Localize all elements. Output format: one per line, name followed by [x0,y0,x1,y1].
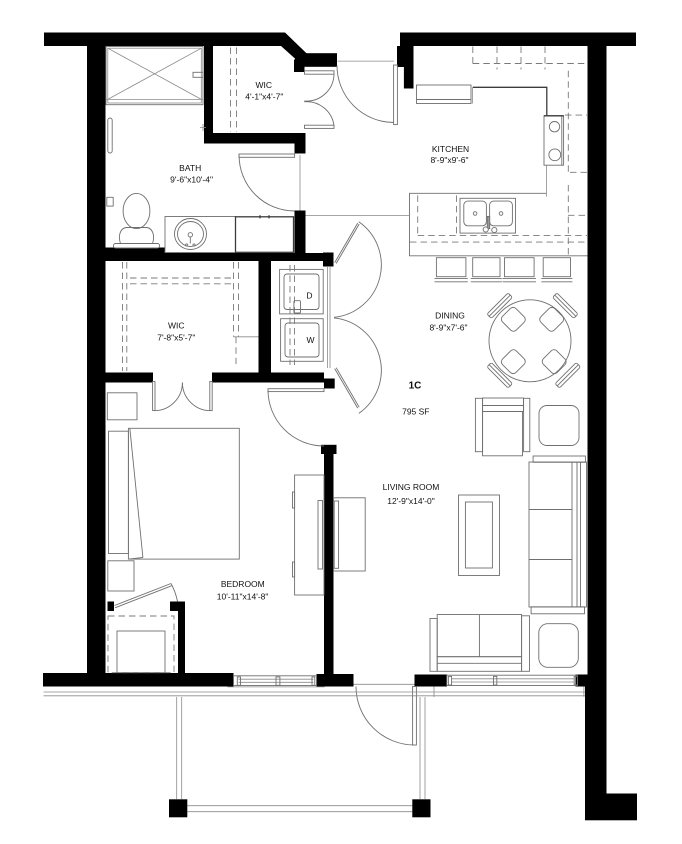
svg-text:BEDROOM: BEDROOM [221,579,265,589]
svg-text:1C: 1C [409,381,422,392]
svg-text:8'-9"x7'-6": 8'-9"x7'-6" [429,322,467,332]
svg-text:WIC: WIC [168,321,185,331]
svg-text:LIVING ROOM: LIVING ROOM [383,482,440,492]
svg-text:D: D [306,291,312,301]
svg-text:12'-9"x14'-0": 12'-9"x14'-0" [387,496,435,506]
svg-text:KITCHEN: KITCHEN [432,144,469,154]
svg-text:9'-6"x10'-4": 9'-6"x10'-4" [170,174,213,184]
svg-text:DINING: DINING [435,310,465,320]
svg-text:WIC: WIC [256,80,273,90]
svg-text:10'-11"x14'-8": 10'-11"x14'-8" [217,591,269,601]
svg-text:7'-8"x5'-7": 7'-8"x5'-7" [157,333,195,343]
svg-text:W: W [306,335,314,345]
svg-text:4'-1"x4'-7": 4'-1"x4'-7" [245,91,283,101]
svg-text:795 SF: 795 SF [402,406,429,416]
svg-text:BATH: BATH [179,163,201,173]
svg-text:8'-9"x9'-6": 8'-9"x9'-6" [430,155,468,165]
